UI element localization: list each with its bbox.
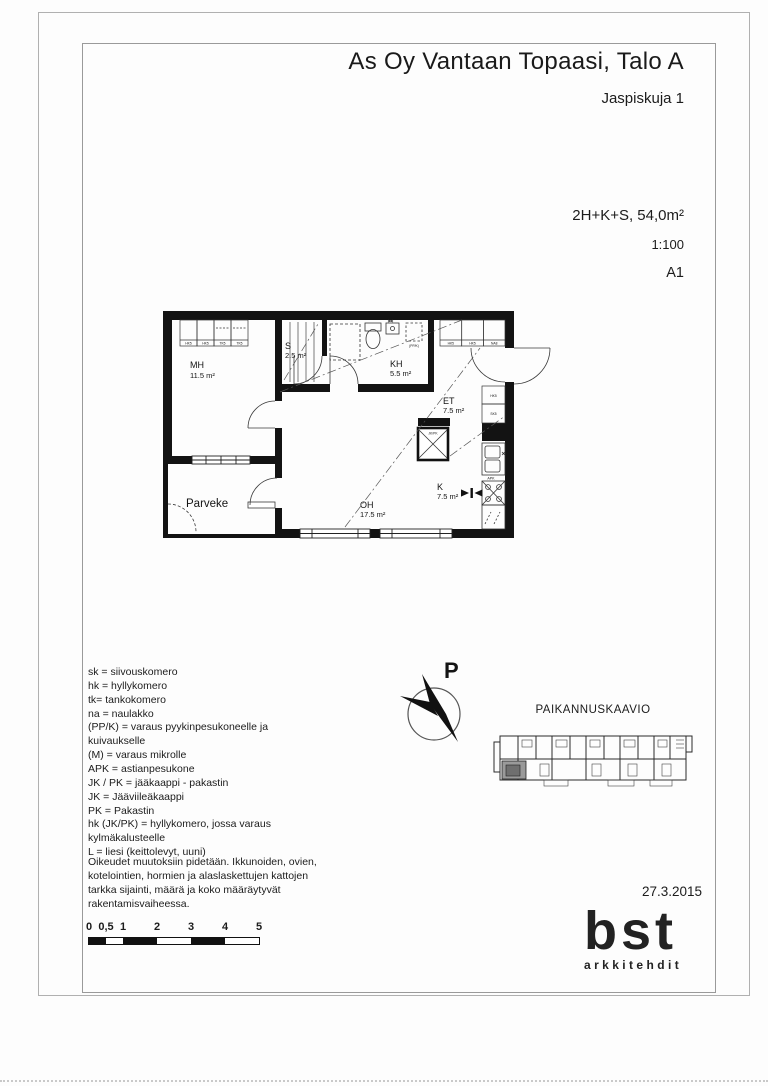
windows	[192, 456, 452, 538]
closet-label: TK5	[236, 342, 242, 346]
location-diagram: PAIKANNUSKAAVIO	[492, 704, 694, 799]
livingroom-window-2	[380, 529, 452, 538]
closet-label: NA8	[491, 342, 498, 346]
stove	[482, 481, 505, 505]
address-label: Jaspiskuja 1	[348, 90, 684, 107]
balcony-walls	[163, 456, 282, 538]
scale-bar-segments	[88, 937, 260, 945]
scale-tick-label: 3	[188, 921, 194, 933]
toilet	[365, 323, 381, 349]
scale-tick-label: 1	[120, 921, 126, 933]
scale-tick-label: 4	[222, 921, 228, 933]
vent-arrow-symbol	[461, 488, 483, 498]
page-title: As Oy Vantaan Topaasi, Talo A	[348, 48, 684, 76]
washbasin	[386, 320, 399, 334]
kitchen-cabinet	[482, 505, 505, 529]
legend-item: PK = Pakastin	[88, 805, 310, 819]
room-label-oh: OH	[360, 500, 374, 510]
location-diagram-plan	[492, 728, 694, 794]
closet-label: HK5	[448, 342, 455, 346]
room-label-kh: KH	[390, 359, 403, 369]
logo-subtitle: arkkitehdit	[584, 958, 716, 972]
scale-label: 1:100	[572, 237, 684, 252]
dishwasher-label: APK	[487, 477, 495, 481]
room-area-mh: 11.5 m²	[190, 371, 215, 380]
drawing-date: 27.3.2015	[642, 884, 702, 899]
kitchen-fixtures: APK	[461, 443, 505, 529]
drawing-spec-block: 2H+K+S, 54,0m² 1:100 A1	[572, 207, 684, 281]
entry-door	[471, 348, 550, 384]
apartment-type-label: 2H+K+S, 54,0m²	[572, 207, 684, 224]
room-area-kh: 5.5 m²	[390, 369, 412, 378]
closet-label: HK5	[202, 342, 209, 346]
scale-segment	[106, 938, 123, 944]
scale-tick-label: 2	[154, 921, 160, 933]
legend-item: JK / PK = jääkaappi - pakastin	[88, 777, 310, 791]
legend-item: tk= tankokomero	[88, 694, 310, 708]
room-area-k: 7.5 m²	[437, 492, 459, 501]
scale-segment	[89, 938, 106, 944]
north-label: P	[444, 658, 459, 683]
livingroom-window-1	[300, 529, 370, 538]
laundry-reservation-label: (PP/K)	[409, 344, 419, 348]
legend-item: sk = siivouskomero	[88, 666, 310, 680]
fridge-freezer-unit: JK/PK	[418, 428, 448, 460]
logo-name: bst	[584, 906, 716, 957]
shower-area	[330, 324, 360, 360]
room-label-parveke: Parveke	[186, 498, 228, 510]
closet-label: HK5	[490, 394, 497, 398]
location-diagram-title: PAIKANNUSKAAVIO	[492, 704, 694, 716]
closet-label: SK5	[490, 412, 496, 416]
legend-item: hk = hyllykomero	[88, 680, 310, 694]
scale-tick-label: 0	[86, 921, 92, 933]
legend-item: hk (JK/PK) = hyllykomero, jossa varaus k…	[88, 818, 310, 846]
bedroom-closets: HK5 HK5 TK5 TK5	[180, 320, 248, 346]
highlighted-apartment	[502, 761, 526, 779]
scale-segment	[225, 938, 259, 944]
room-label-s: S	[285, 341, 291, 351]
sheet-number-label: A1	[572, 265, 684, 281]
room-label-mh: MH	[190, 360, 204, 370]
interior-walls	[275, 320, 505, 456]
legend-block: sk = siivouskomero hk = hyllykomero tk= …	[88, 666, 310, 860]
scale-tick-label: 5	[256, 921, 262, 933]
legend-item: APK = astianpesukone	[88, 763, 310, 777]
closet-label: HK5	[469, 342, 476, 346]
architect-logo: bst arkkitehdit	[584, 906, 716, 972]
closet-label: HK5	[185, 342, 192, 346]
scale-tick-label: 0,5	[98, 921, 113, 933]
legend-item: (PP/K) = varaus pyykinpesukoneelle ja ku…	[88, 721, 310, 749]
scale-bar-labels: 0 0,5 1 2 3 4 5	[88, 921, 268, 935]
entry-closets: HK5 HK5 NA8	[440, 320, 505, 346]
legend-item: JK = Jääviileäkaappi	[88, 791, 310, 805]
title-block: As Oy Vantaan Topaasi, Talo A Jaspiskuja…	[348, 48, 684, 107]
scale-bar: 0 0,5 1 2 3 4 5	[88, 921, 268, 945]
room-area-oh: 17.5 m²	[360, 510, 386, 519]
scan-artifact-line	[0, 1080, 768, 1082]
closet-label: TK5	[219, 342, 225, 346]
scale-segment	[123, 938, 157, 944]
floor-plan-drawing: HK5 HK5 TK5 TK5 HK5 HK5 NA8 HK5 SK5	[160, 306, 580, 551]
fridge-label: JK/PK	[428, 432, 438, 436]
bedroom-balcony-window	[192, 456, 250, 464]
room-label-et: ET	[443, 396, 455, 406]
scanned-floorplan-page: { "header": { "title": "As Oy Vantaan To…	[0, 0, 768, 1086]
room-area-s: 2.5 m²	[285, 351, 307, 360]
room-area-et: 7.5 m²	[443, 406, 465, 415]
kitchen-sink	[482, 443, 505, 475]
legend-item: na = naulakko	[88, 708, 310, 722]
room-label-k: K	[437, 482, 443, 492]
hall-closets: HK5 SK5	[482, 386, 505, 423]
disclaimer-text: Oikeudet muutoksiin pidetään. Ikkunoiden…	[88, 856, 322, 911]
bedroom-door	[248, 401, 275, 428]
scale-segment	[191, 938, 225, 944]
scale-segment	[157, 938, 191, 944]
legend-item: (M) = varaus mikrolle	[88, 749, 310, 763]
north-arrow: P	[396, 652, 480, 756]
laundry-reservation: (PP/K)	[406, 323, 422, 348]
